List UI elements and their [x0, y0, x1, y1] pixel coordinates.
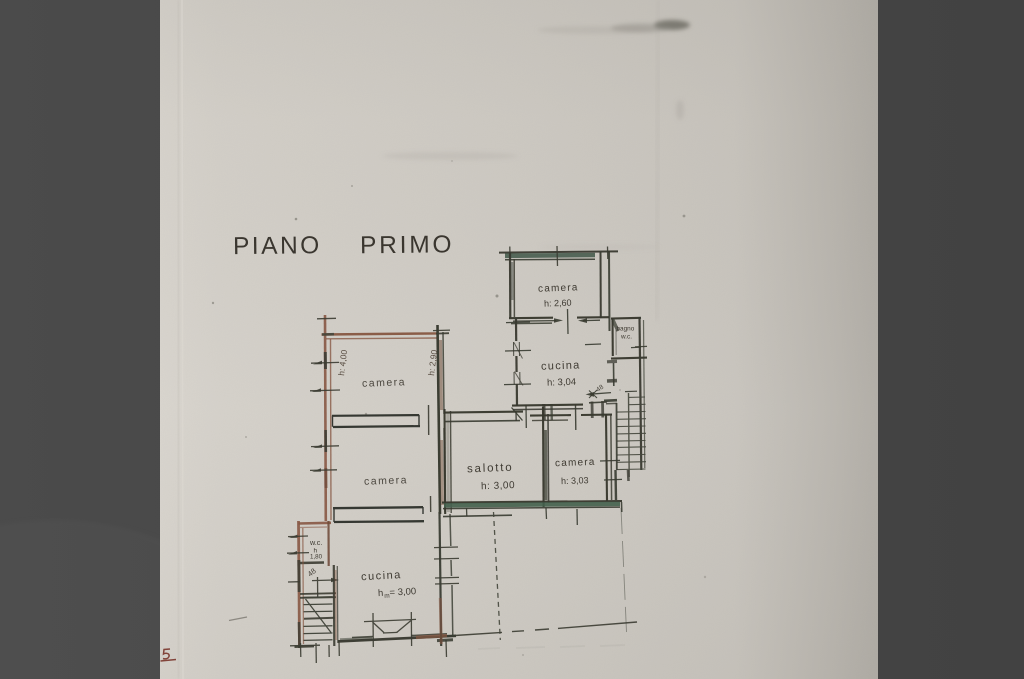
svg-text:h: 3,03: h: 3,03 [561, 475, 589, 486]
svg-text:camera: camera [364, 474, 408, 488]
svg-text:h: 3,04: h: 3,04 [547, 377, 576, 389]
svg-text:camera: camera [362, 376, 406, 390]
svg-text:PIANO: PIANO [233, 232, 322, 260]
svg-text:cucina: cucina [361, 569, 402, 583]
svg-text:w.c.: w.c. [309, 538, 322, 547]
svg-text:w.c.: w.c. [620, 334, 632, 341]
svg-text:cucina: cucina [541, 359, 581, 372]
svg-text:camera: camera [538, 282, 579, 294]
svg-text:1,80: 1,80 [310, 554, 323, 561]
svg-text:bagno: bagno [617, 326, 635, 333]
svg-text:h: 2,60: h: 2,60 [544, 298, 572, 309]
svg-text:salotto: salotto [467, 462, 514, 476]
svg-text:PRIMO: PRIMO [360, 231, 455, 259]
svg-text:h: 3,00: h: 3,00 [481, 480, 515, 492]
svg-text:camera: camera [555, 457, 596, 469]
